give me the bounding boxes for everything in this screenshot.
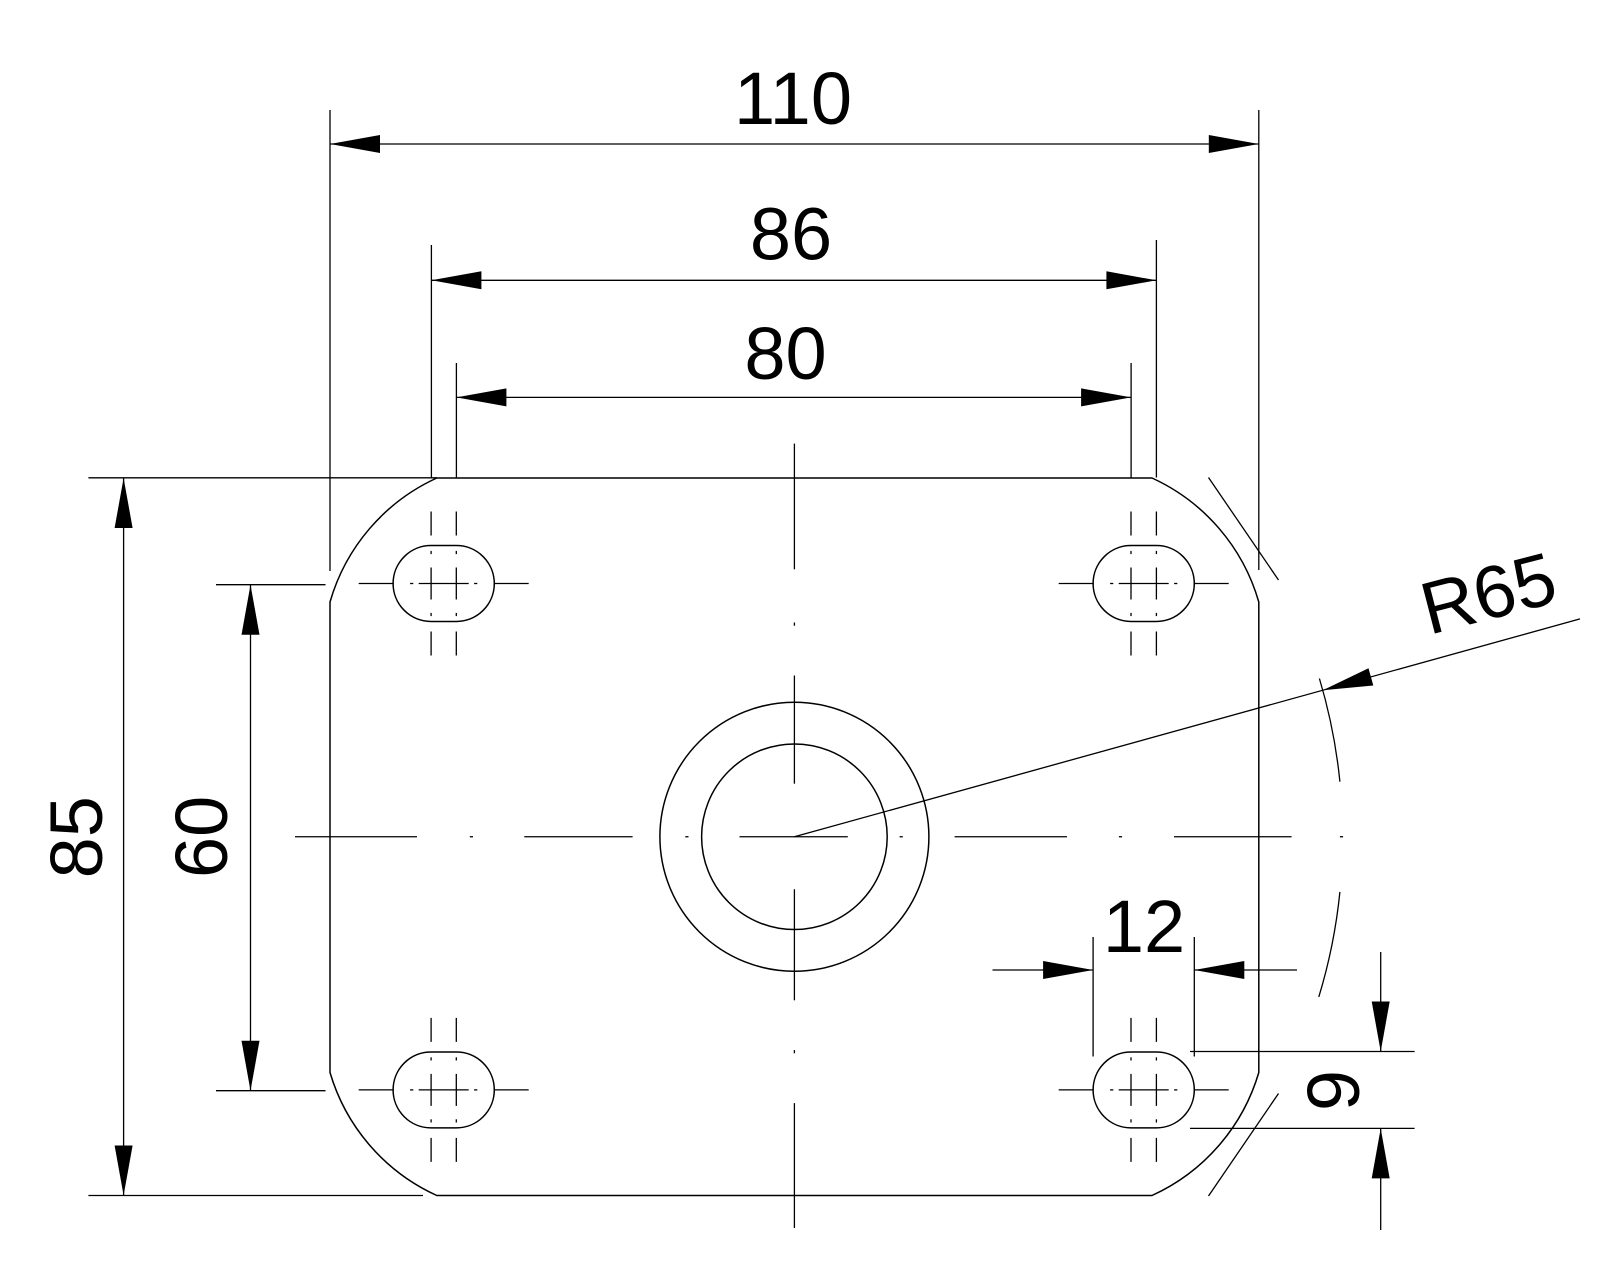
svg-text:110: 110 bbox=[734, 57, 852, 140]
svg-text:86: 86 bbox=[750, 193, 832, 276]
svg-text:9: 9 bbox=[1292, 1070, 1375, 1111]
svg-text:80: 80 bbox=[744, 312, 826, 395]
svg-text:85: 85 bbox=[35, 796, 118, 878]
svg-text:12: 12 bbox=[1103, 885, 1185, 968]
svg-text:60: 60 bbox=[160, 796, 243, 878]
svg-text:R65: R65 bbox=[1412, 536, 1564, 650]
